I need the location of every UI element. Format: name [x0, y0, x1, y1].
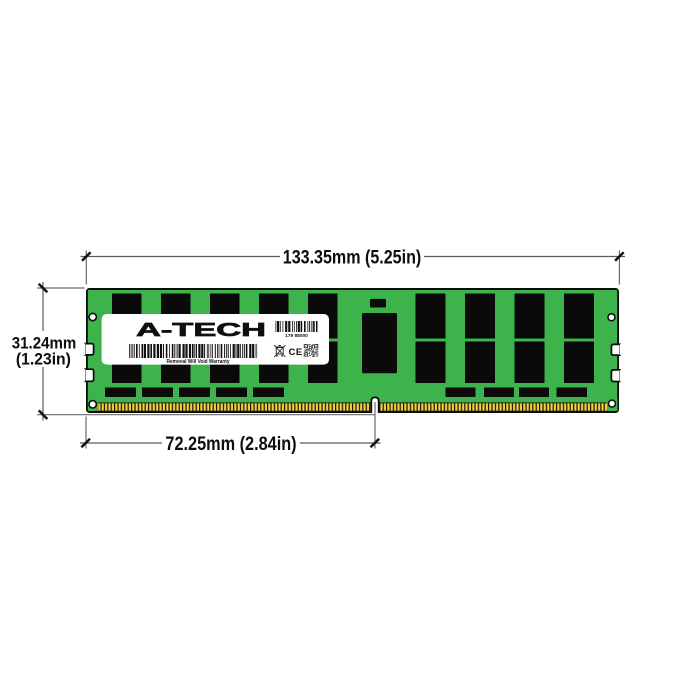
svg-text:A-TECH: A-TECH [136, 319, 266, 340]
svg-text:133.35mm (5.25in): 133.35mm (5.25in) [283, 247, 422, 268]
svg-text:179 88000: 179 88000 [285, 333, 308, 339]
svg-text:72.25mm (2.84in): 72.25mm (2.84in) [165, 434, 296, 455]
svg-text:CE: CE [289, 347, 303, 358]
svg-text:Removal Will Void Warranty: Removal Will Void Warranty [167, 359, 231, 365]
svg-text:(1.23in): (1.23in) [16, 351, 71, 369]
